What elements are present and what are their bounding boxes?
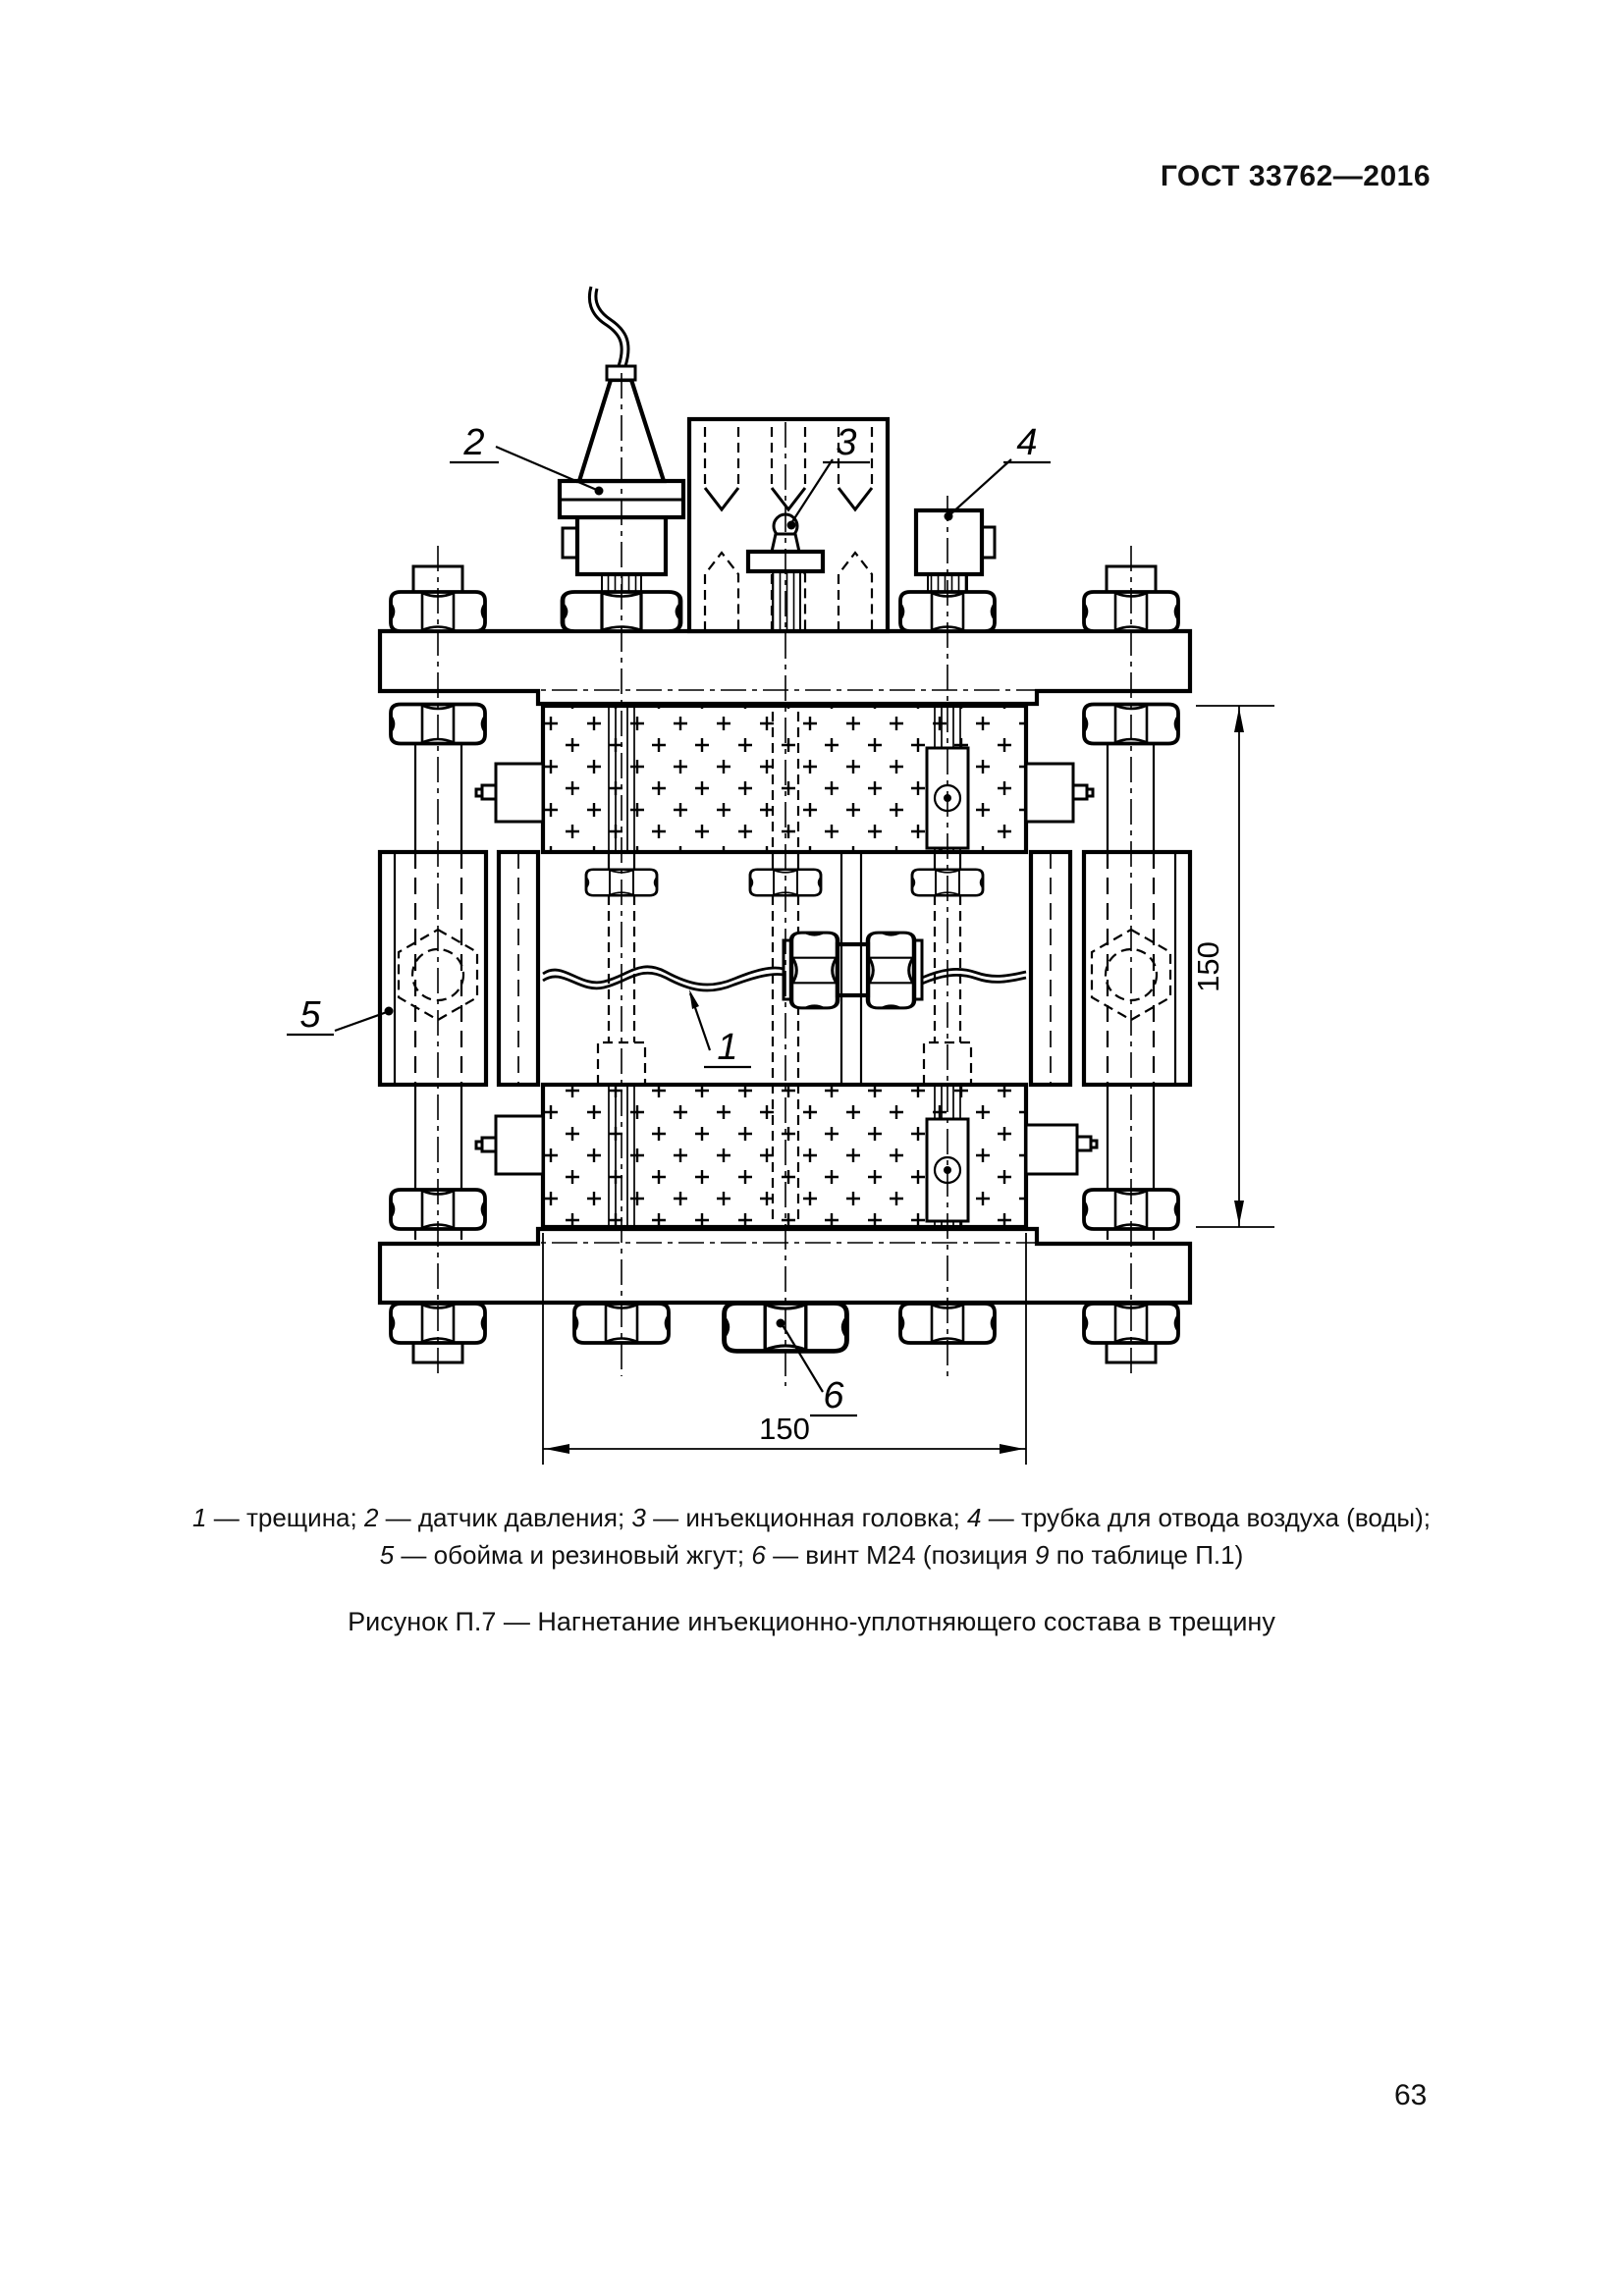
clamp-column-right xyxy=(1031,852,1190,1085)
callout-5: 5 xyxy=(287,994,394,1036)
dimension-vertical: 150 xyxy=(1191,706,1274,1227)
svg-text:6: 6 xyxy=(823,1375,844,1416)
legend-line-1: 1 — трещина; 2 — датчик давления; 3 — ин… xyxy=(79,1499,1544,1536)
svg-text:4: 4 xyxy=(1016,422,1037,463)
technical-drawing: 150 150 2 3 4 xyxy=(0,0,1623,2296)
document-page: ГОСТ 33762—2016 xyxy=(0,0,1623,2296)
dimension-vertical-value: 150 xyxy=(1191,941,1225,992)
svg-text:1: 1 xyxy=(717,1027,737,1068)
callout-4: 4 xyxy=(945,422,1052,521)
dimension-horizontal-value: 150 xyxy=(759,1412,810,1446)
figure-title: Рисунок П.7 — Нагнетание инъекционно-упл… xyxy=(79,1607,1544,1637)
clamp-column-left xyxy=(380,852,538,1085)
svg-text:5: 5 xyxy=(299,994,321,1036)
svg-text:3: 3 xyxy=(836,422,856,463)
legend-line-2: 5 — обойма и резиновый жгут; 6 — винт М2… xyxy=(79,1536,1544,1574)
page-number: 63 xyxy=(1394,2079,1427,2112)
outlet-tube xyxy=(916,510,995,592)
figure-legend: 1 — трещина; 2 — датчик давления; 3 — ин… xyxy=(79,1499,1544,1574)
callout-1: 1 xyxy=(689,989,751,1068)
screw-coupling xyxy=(784,933,922,1008)
svg-text:2: 2 xyxy=(462,422,484,463)
